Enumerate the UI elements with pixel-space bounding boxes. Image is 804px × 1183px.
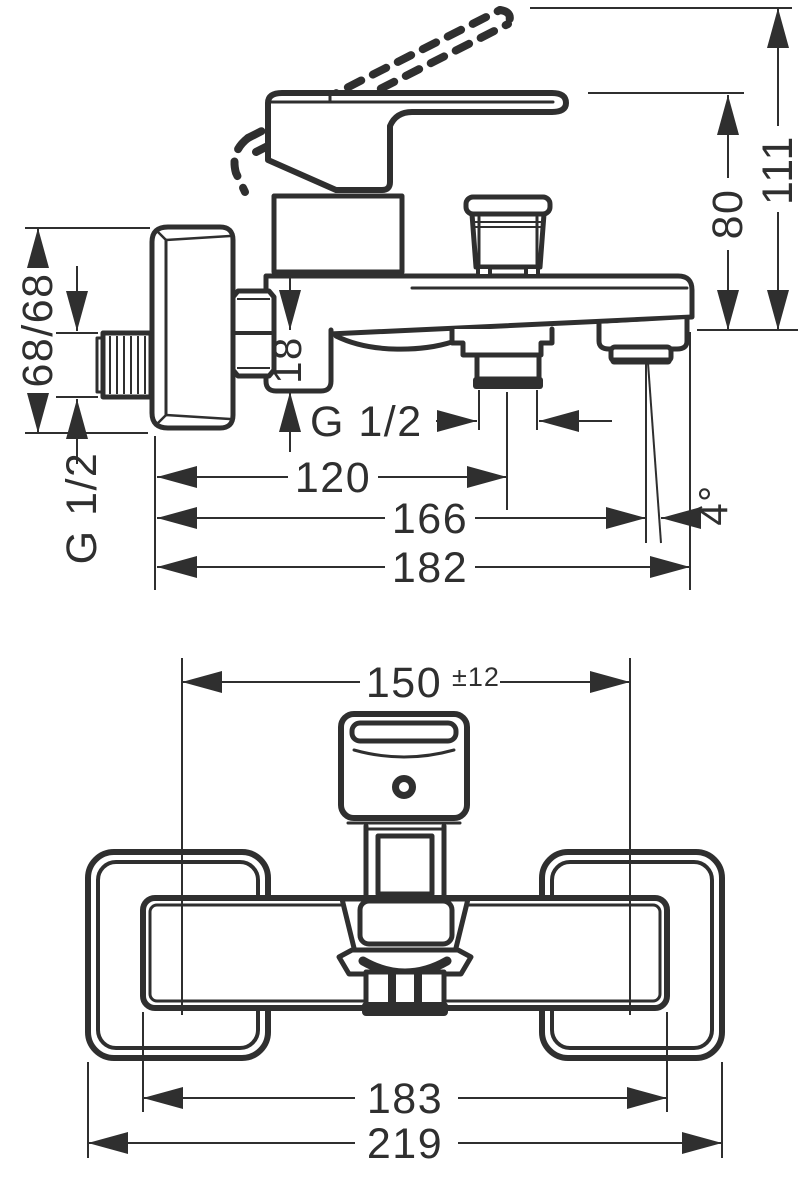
dimension-shower-thread: G 1/2	[310, 398, 612, 446]
thread-label-wall: G 1/2	[58, 452, 106, 565]
handle-lever	[268, 93, 566, 190]
dim-label-150-tolerance: ±12	[452, 662, 500, 692]
dim-label-219: 219	[367, 1120, 443, 1168]
dim-label-183: 183	[367, 1075, 443, 1123]
faucet-dimension-drawing: 111 80 68/68 G 1/2 18 G 1/2	[0, 0, 804, 1183]
angle-label-4deg: 4°	[692, 484, 736, 525]
dim-label-150: 150	[366, 659, 442, 707]
dimension-height-handle: 80	[704, 95, 752, 330]
shower-hose-outlet	[452, 329, 552, 389]
spout-aerator	[599, 319, 687, 361]
dimension-depth-total: 182	[157, 544, 690, 592]
dim-label-80: 80	[704, 189, 752, 240]
dim-label-166: 166	[392, 495, 468, 543]
dimension-connection-centers: 150 ±12	[182, 659, 630, 707]
front-view: 150 ±12 183 219	[88, 658, 722, 1168]
dim-label-111: 111	[754, 135, 802, 205]
dimension-total-width: 219	[88, 1120, 722, 1168]
thread-label-shower: G 1/2	[310, 398, 423, 446]
valve-body	[274, 196, 402, 272]
wall-pipe-thread	[97, 333, 151, 397]
dimension-depth-spout: 166 4°	[157, 484, 736, 543]
dimension-wall-thread: G 1/2	[58, 266, 106, 564]
spout-nipple	[366, 972, 444, 1006]
side-view: 111 80 68/68 G 1/2 18 G 1/2	[14, 8, 802, 592]
handle-front	[341, 714, 467, 898]
dimension-height-total: 111	[754, 8, 802, 330]
escutcheon-side	[152, 227, 233, 428]
diverter-knob	[466, 197, 550, 276]
technical-drawing-page: 111 80 68/68 G 1/2 18 G 1/2	[0, 0, 804, 1183]
dim-label-18: 18	[266, 336, 310, 384]
dim-label-120: 120	[295, 454, 371, 502]
dimension-body-width: 183	[143, 1075, 667, 1123]
dim-label-182: 182	[392, 544, 468, 592]
dim-label-68-68: 68/68	[14, 272, 62, 387]
dimension-wall-offsets: 68/68	[14, 228, 62, 433]
